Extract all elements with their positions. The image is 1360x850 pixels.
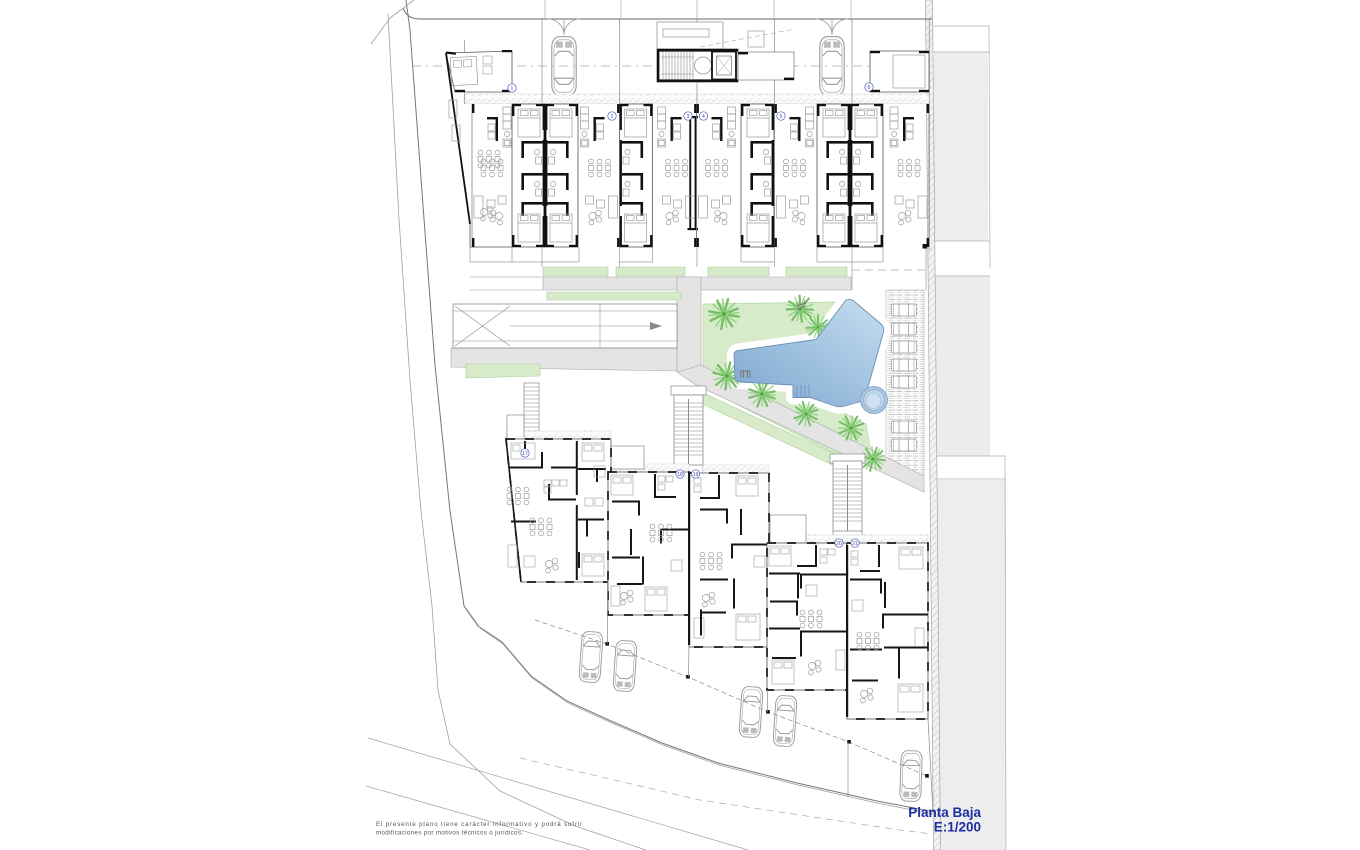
svg-text:21: 21 bbox=[852, 541, 858, 547]
svg-text:3: 3 bbox=[687, 114, 690, 120]
svg-text:17: 17 bbox=[522, 451, 528, 457]
svg-text:E:1/200: E:1/200 bbox=[934, 820, 981, 835]
svg-text:El presente plano tiene caráct: El presente plano tiene carácter informa… bbox=[376, 821, 582, 828]
svg-text:1: 1 bbox=[511, 86, 514, 92]
svg-text:modificaciones por motivos téc: modificaciones por motivos técnicos o ju… bbox=[376, 830, 523, 837]
svg-text:20: 20 bbox=[836, 541, 842, 547]
svg-text:18: 18 bbox=[677, 472, 683, 478]
svg-text:2: 2 bbox=[611, 114, 614, 120]
svg-text:4: 4 bbox=[702, 114, 705, 120]
svg-text:5: 5 bbox=[780, 114, 783, 120]
svg-text:Planta Baja: Planta Baja bbox=[908, 805, 981, 820]
svg-text:19: 19 bbox=[693, 472, 699, 478]
svg-text:6: 6 bbox=[868, 85, 871, 91]
